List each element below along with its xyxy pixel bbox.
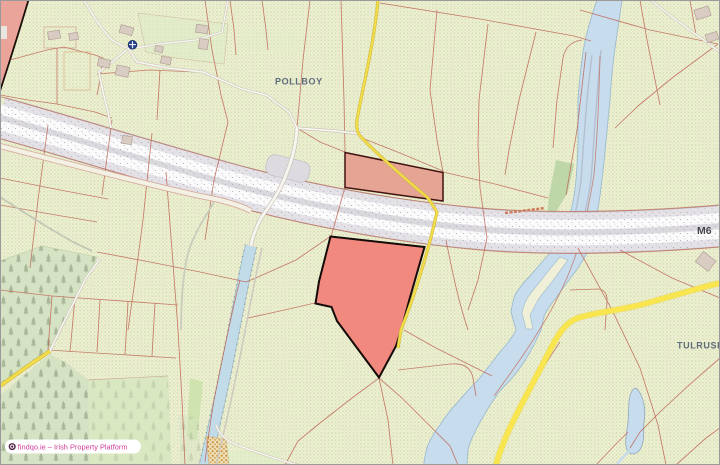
- svg-text:M6: M6: [697, 225, 712, 237]
- svg-text:findqo.ie – Irish Property Pla: findqo.ie – Irish Property Platform: [18, 443, 128, 452]
- svg-text:POLLBOY: POLLBOY: [275, 77, 323, 87]
- svg-text:TULRUSHANE: TULRUSHANE: [677, 341, 720, 351]
